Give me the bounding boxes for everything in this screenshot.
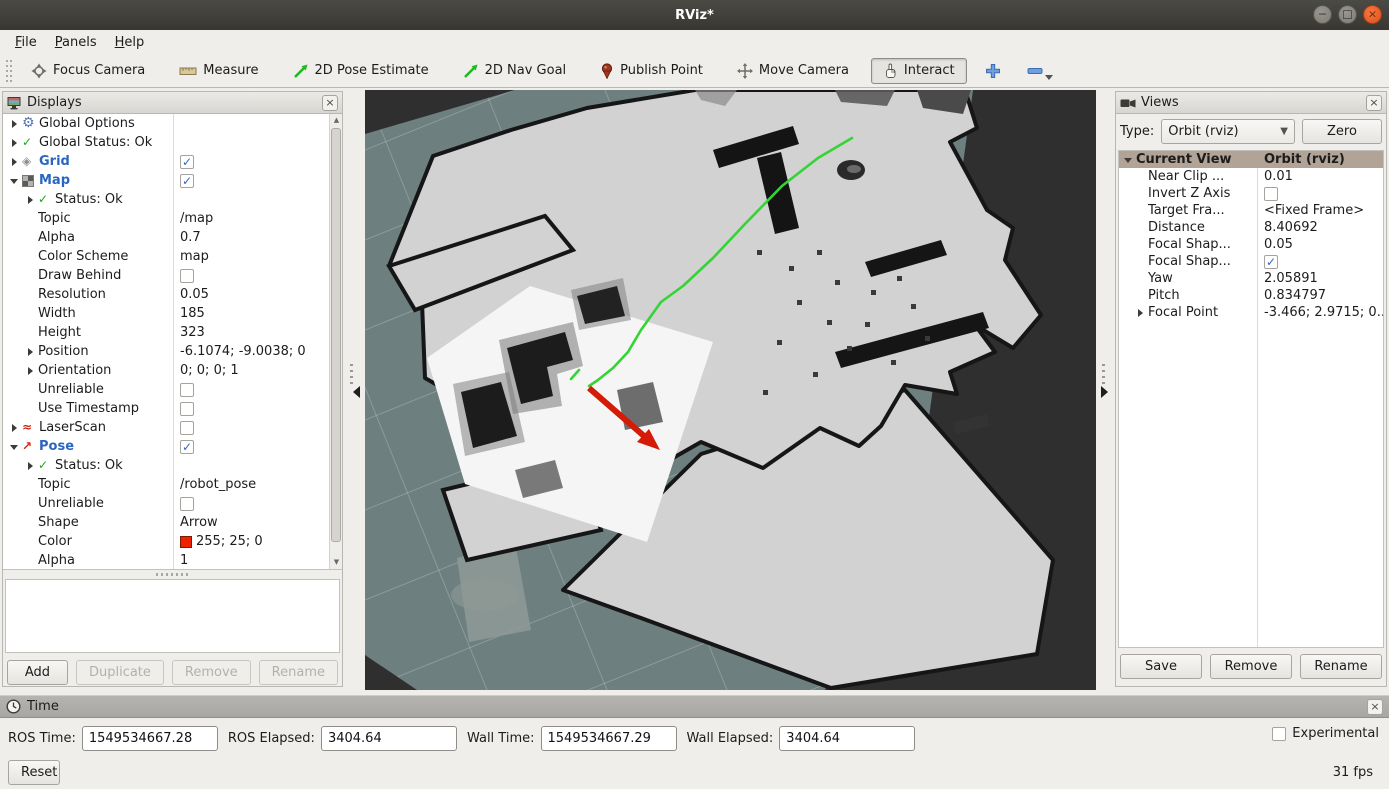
tree-row[interactable]: Global Status: Ok <box>3 133 342 152</box>
time-panel-header[interactable]: Time × <box>0 696 1389 718</box>
panel-button[interactable]: Remove <box>1210 654 1292 679</box>
right-splitter[interactable] <box>1096 88 1116 688</box>
tree-row[interactable]: Color Scheme map <box>3 247 342 266</box>
tree-row[interactable]: Topic /robot_pose <box>3 475 342 494</box>
tree-row[interactable]: Color 255; 25; 0 <box>3 532 342 551</box>
time-panel-title: Time <box>27 699 59 714</box>
property-name: Grid <box>39 152 70 171</box>
pose-icon <box>22 438 39 455</box>
expander-icon[interactable] <box>9 138 22 148</box>
add-tool-button[interactable] <box>985 63 1001 79</box>
experimental-label: Experimental <box>1292 726 1379 741</box>
interact-icon <box>883 63 898 79</box>
clock-icon <box>6 699 21 714</box>
color-swatch[interactable] <box>180 536 192 548</box>
tree-row[interactable]: Topic /map <box>3 209 342 228</box>
expander-icon[interactable] <box>25 252 38 262</box>
expander-icon[interactable] <box>25 537 38 547</box>
focus-camera-icon <box>31 63 47 79</box>
panel-button[interactable]: Add <box>7 660 68 685</box>
property-value[interactable]: /robot_pose <box>180 475 256 494</box>
property-name: Unreliable <box>38 380 104 399</box>
toolbar-button[interactable]: Focus Camera <box>19 58 157 84</box>
main-area: Displays × ▲ ▼ <box>0 88 1389 695</box>
view-type-value: Orbit (rviz) <box>1168 124 1238 139</box>
menubar: File Panels Help <box>0 30 1389 54</box>
tree-row[interactable]: Pose <box>3 437 342 456</box>
panel-button[interactable]: Rename <box>1300 654 1382 679</box>
toolbar-button-label: Measure <box>203 63 258 78</box>
toolbar-button[interactable]: Move Camera <box>725 58 861 84</box>
property-value[interactable]: Arrow <box>180 513 218 532</box>
tree-row[interactable]: Map <box>3 171 342 190</box>
menu-item[interactable]: Help <box>106 33 154 52</box>
minimize-button[interactable]: − <box>1313 5 1332 24</box>
rviz-window: RViz* − □ × File Panels Help <box>0 0 1389 789</box>
plus-icon <box>985 63 1001 79</box>
property-name: Status: Ok <box>55 456 123 475</box>
property-value[interactable]: 323 <box>180 323 205 342</box>
expander-icon[interactable] <box>1135 291 1148 301</box>
panel-splitter[interactable] <box>3 570 342 579</box>
tree-row[interactable]: Alpha 0.7 <box>3 228 342 247</box>
expander-icon[interactable] <box>9 157 22 167</box>
displays-panel: Displays × ▲ ▼ <box>2 91 343 687</box>
tree-row[interactable]: Target Fra... <Fixed Frame> <box>1119 202 1383 219</box>
property-value[interactable]: 0.834797 <box>1264 287 1326 304</box>
expander-icon[interactable] <box>1135 240 1148 250</box>
property-value[interactable]: 0.05 <box>1264 236 1293 253</box>
tree-row[interactable]: Width 185 <box>3 304 342 323</box>
tree-row[interactable]: Yaw 2.05891 <box>1119 270 1383 287</box>
expander-icon[interactable] <box>25 328 38 338</box>
experimental-checkbox[interactable] <box>1272 727 1286 741</box>
property-value[interactable]: 0.7 <box>180 228 201 247</box>
property-name: Draw Behind <box>38 266 121 285</box>
monitor-icon <box>7 96 22 110</box>
property-value[interactable]: 2.05891 <box>1264 270 1318 287</box>
property-value[interactable]: 8.40692 <box>1264 219 1318 236</box>
time-field-label: Wall Time: <box>467 731 535 746</box>
time-field-input[interactable] <box>82 726 218 751</box>
expander-icon[interactable] <box>25 461 38 471</box>
property-name: Position <box>38 342 89 361</box>
expander-icon[interactable] <box>25 366 38 376</box>
property-name: Topic <box>38 475 71 494</box>
toolbar-drag-handle[interactable] <box>6 60 13 82</box>
tree-row[interactable]: Position -6.1074; -9.0038; 0 <box>3 342 342 361</box>
time-field: Wall Time: <box>467 726 677 751</box>
property-name: Map <box>39 171 70 190</box>
property-value[interactable]: 185 <box>180 304 205 323</box>
time-panel: Time × ROS Time: ROS Elapsed: Wall Time: <box>0 695 1389 789</box>
expander-icon[interactable] <box>9 176 22 186</box>
property-name: Alpha <box>38 228 75 247</box>
map-icon <box>22 175 34 187</box>
displays-panel-header[interactable]: Displays × <box>3 92 342 114</box>
property-name: Unreliable <box>38 494 104 513</box>
expander-icon[interactable] <box>1135 172 1148 182</box>
property-name: Color <box>38 532 72 551</box>
checkbox[interactable] <box>180 497 194 511</box>
property-name: Topic <box>38 209 71 228</box>
panel-button[interactable]: Rename <box>259 660 338 685</box>
property-name: Color Scheme <box>38 247 128 266</box>
fps-counter: 31 fps <box>1333 765 1373 780</box>
tree-row[interactable]: Resolution 0.05 <box>3 285 342 304</box>
expander-icon[interactable] <box>1135 308 1148 318</box>
property-name: Pose <box>39 437 74 456</box>
property-name: Target Fra... <box>1148 202 1225 219</box>
measure-icon <box>179 63 197 79</box>
tree-row[interactable]: Status: Ok <box>3 456 342 475</box>
chevron-down-icon: ▼ <box>1280 126 1288 137</box>
property-name: Pitch <box>1148 287 1180 304</box>
property-name: Yaw <box>1148 270 1173 287</box>
time-field-label: ROS Elapsed: <box>228 731 315 746</box>
views-panel-header[interactable]: Views × <box>1116 92 1386 114</box>
tree-row[interactable]: Height 323 <box>3 323 342 342</box>
property-name: Shape <box>38 513 79 532</box>
property-name: Current View <box>1136 151 1232 168</box>
displays-panel-title: Displays <box>27 95 82 110</box>
check-icon <box>38 191 55 208</box>
toolbar-button-label: Interact <box>904 63 955 78</box>
expander-icon[interactable] <box>25 404 38 414</box>
tree-row[interactable]: Focal Shap... <box>1119 253 1383 270</box>
collapse-left-icon[interactable] <box>353 386 360 398</box>
3d-viewport[interactable] <box>365 90 1096 690</box>
titlebar[interactable]: RViz* − □ × <box>0 0 1389 30</box>
panel-button[interactable]: Remove <box>172 660 251 685</box>
reset-button[interactable]: Reset <box>8 760 60 785</box>
expander-icon[interactable] <box>25 480 38 490</box>
tree-row[interactable]: Shape Arrow <box>3 513 342 532</box>
property-name: Focal Point <box>1148 304 1218 321</box>
toolbar-button[interactable]: Publish Point <box>588 58 715 84</box>
laser-icon <box>22 419 39 436</box>
property-name: Global Options <box>39 114 135 133</box>
time-field-label: ROS Time: <box>8 731 76 746</box>
property-value[interactable]: map <box>180 247 209 266</box>
toolbar-button-label: Move Camera <box>759 63 849 78</box>
tree-row[interactable]: Draw Behind <box>3 266 342 285</box>
expander-icon[interactable] <box>25 499 38 509</box>
maximize-button[interactable]: □ <box>1338 5 1357 24</box>
time-field: ROS Time: <box>8 726 218 751</box>
property-name: Width <box>38 304 76 323</box>
checkbox[interactable] <box>180 174 194 188</box>
gear-icon <box>22 115 39 132</box>
tree-row[interactable]: Focal Point -3.466; 2.9715; 0... <box>1119 304 1383 321</box>
pose-estimate-icon <box>293 63 309 79</box>
time-field-input[interactable] <box>321 726 457 751</box>
left-splitter[interactable] <box>344 88 364 688</box>
expander-icon[interactable] <box>1135 206 1148 216</box>
panel-button[interactable]: Save <box>1120 654 1202 679</box>
expander-icon[interactable] <box>25 385 38 395</box>
property-name: Focal Shap... <box>1148 253 1231 270</box>
menu-item[interactable]: File <box>6 33 46 52</box>
checkbox[interactable] <box>180 402 194 416</box>
expander-icon[interactable] <box>1123 155 1136 165</box>
property-name: Focal Shap... <box>1148 236 1231 253</box>
publish-point-icon <box>600 63 614 79</box>
time-close-icon[interactable]: × <box>1367 699 1383 715</box>
minus-icon <box>1027 66 1043 76</box>
views-tree: Current View Orbit (rviz) Nea <box>1118 150 1384 648</box>
occupancy-map <box>389 90 1053 688</box>
expander-icon[interactable] <box>1135 257 1148 267</box>
checkbox[interactable] <box>1264 255 1278 269</box>
toolbar-button[interactable]: Measure <box>167 58 270 84</box>
display-description-box <box>5 579 340 653</box>
expander-icon[interactable] <box>9 423 22 433</box>
property-value[interactable]: -3.466; 2.9715; 0... <box>1264 304 1383 321</box>
checkbox[interactable] <box>180 421 194 435</box>
tree-row[interactable]: Near Clip ... 0.01 <box>1119 168 1383 185</box>
expander-icon[interactable] <box>25 518 38 528</box>
expander-icon[interactable] <box>1135 189 1148 199</box>
tree-row[interactable]: Distance 8.40692 <box>1119 219 1383 236</box>
property-value[interactable]: 0; 0; 0; 1 <box>180 361 239 380</box>
views-panel-title: Views <box>1141 95 1179 110</box>
tree-row[interactable]: Global Options <box>3 114 342 133</box>
property-name: Distance <box>1148 219 1205 236</box>
expander-icon[interactable] <box>9 119 22 129</box>
menu-item[interactable]: Panels <box>46 33 106 52</box>
tree-row[interactable]: Status: Ok <box>3 190 342 209</box>
check-icon <box>38 457 55 474</box>
property-name: Use Timestamp <box>38 399 139 418</box>
time-field-input[interactable] <box>541 726 677 751</box>
grid-icon <box>22 153 39 170</box>
expander-icon[interactable] <box>25 290 38 300</box>
expander-icon[interactable] <box>25 556 38 566</box>
checkbox[interactable] <box>180 269 194 283</box>
views-close-icon[interactable]: × <box>1366 95 1382 111</box>
toolbar-button[interactable]: 2D Pose Estimate <box>281 58 441 84</box>
expander-icon[interactable] <box>25 195 38 205</box>
toolbar-button-label: 2D Nav Goal <box>485 63 567 78</box>
property-value[interactable]: Orbit (rviz) <box>1264 151 1345 168</box>
property-name: Status: Ok <box>55 190 123 209</box>
tree-row[interactable]: Unreliable <box>3 494 342 513</box>
move-camera-icon <box>737 63 753 79</box>
property-value[interactable]: 1 <box>180 551 188 570</box>
toolbar-button[interactable]: Interact <box>871 58 967 84</box>
property-value[interactable]: /map <box>180 209 213 228</box>
property-name: LaserScan <box>39 418 106 437</box>
checkbox[interactable] <box>180 155 194 169</box>
expander-icon[interactable] <box>1135 274 1148 284</box>
property-name: Invert Z Axis <box>1148 185 1230 202</box>
zero-button[interactable]: Zero <box>1302 119 1382 144</box>
property-value[interactable]: <Fixed Frame> <box>1264 202 1364 219</box>
tree-row[interactable]: Current View Orbit (rviz) <box>1119 151 1383 168</box>
tree-row[interactable]: Use Timestamp <box>3 399 342 418</box>
property-value[interactable]: 255; 25; 0 <box>196 532 263 551</box>
checkbox[interactable] <box>1264 187 1278 201</box>
displays-tree: ▲ ▼ Global Options <box>3 114 342 570</box>
tree-row[interactable]: Orientation 0; 0; 0; 1 <box>3 361 342 380</box>
render-scene <box>365 90 1096 690</box>
property-value[interactable]: 0.01 <box>1264 168 1293 185</box>
property-name: Resolution <box>38 285 106 304</box>
collapse-right-icon[interactable] <box>1101 386 1108 398</box>
property-name: Global Status: Ok <box>39 133 152 152</box>
chevron-down-icon <box>1045 75 1053 80</box>
expander-icon[interactable] <box>25 214 38 224</box>
close-button[interactable]: × <box>1363 5 1382 24</box>
property-name: Height <box>38 323 81 342</box>
panel-button[interactable]: Duplicate <box>76 660 164 685</box>
time-field: ROS Elapsed: <box>228 726 457 751</box>
expander-icon[interactable] <box>25 347 38 357</box>
tree-row[interactable]: Pitch 0.834797 <box>1119 287 1383 304</box>
tree-row[interactable]: Grid <box>3 152 342 171</box>
property-value[interactable]: -6.1074; -9.0038; 0 <box>180 342 306 361</box>
window-title: RViz* <box>675 8 714 23</box>
camera-icon <box>1120 97 1136 109</box>
toolbar-button-label: 2D Pose Estimate <box>315 63 429 78</box>
time-field-input[interactable] <box>779 726 915 751</box>
views-panel: Views × Type: Orbit (rviz) ▼ Zero <box>1115 91 1387 687</box>
displays-close-icon[interactable]: × <box>322 95 338 111</box>
property-name: Alpha <box>38 551 75 570</box>
expander-icon[interactable] <box>1135 223 1148 233</box>
checkbox[interactable] <box>180 383 194 397</box>
expander-icon[interactable] <box>25 309 38 319</box>
tree-row[interactable]: Invert Z Axis <box>1119 185 1383 202</box>
tree-row[interactable]: Alpha 1 <box>3 551 342 570</box>
tree-row[interactable]: Unreliable <box>3 380 342 399</box>
property-name: Orientation <box>38 361 111 380</box>
property-value[interactable]: 0.05 <box>180 285 209 304</box>
type-label: Type: <box>1120 124 1154 139</box>
check-icon <box>22 134 39 151</box>
expander-icon[interactable] <box>25 271 38 281</box>
toolbar-button-label: Publish Point <box>620 63 703 78</box>
nav-goal-icon <box>463 63 479 79</box>
remove-tool-button[interactable] <box>1027 66 1043 76</box>
property-name: Near Clip ... <box>1148 168 1224 185</box>
expander-icon[interactable] <box>25 233 38 243</box>
toolbar: Focus Camera Measure <box>0 54 1389 88</box>
tree-row[interactable]: LaserScan <box>3 418 342 437</box>
tree-row[interactable]: Focal Shap... 0.05 <box>1119 236 1383 253</box>
view-type-dropdown[interactable]: Orbit (rviz) ▼ <box>1161 119 1295 144</box>
time-field: Wall Elapsed: <box>687 726 916 751</box>
toolbar-button-label: Focus Camera <box>53 63 145 78</box>
toolbar-button[interactable]: 2D Nav Goal <box>451 58 579 84</box>
expander-icon[interactable] <box>9 442 22 452</box>
checkbox[interactable] <box>180 440 194 454</box>
time-field-label: Wall Elapsed: <box>687 731 774 746</box>
